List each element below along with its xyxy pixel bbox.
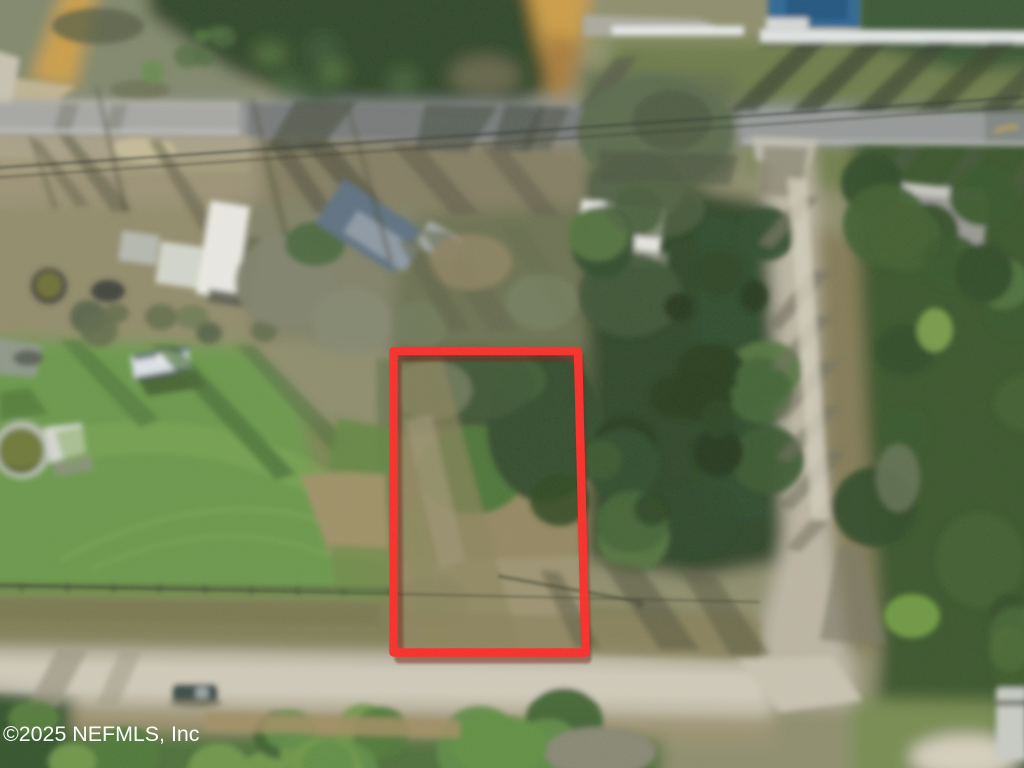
svg-text:©2025 NEFMLS, Inc: ©2025 NEFMLS, Inc: [3, 722, 200, 746]
